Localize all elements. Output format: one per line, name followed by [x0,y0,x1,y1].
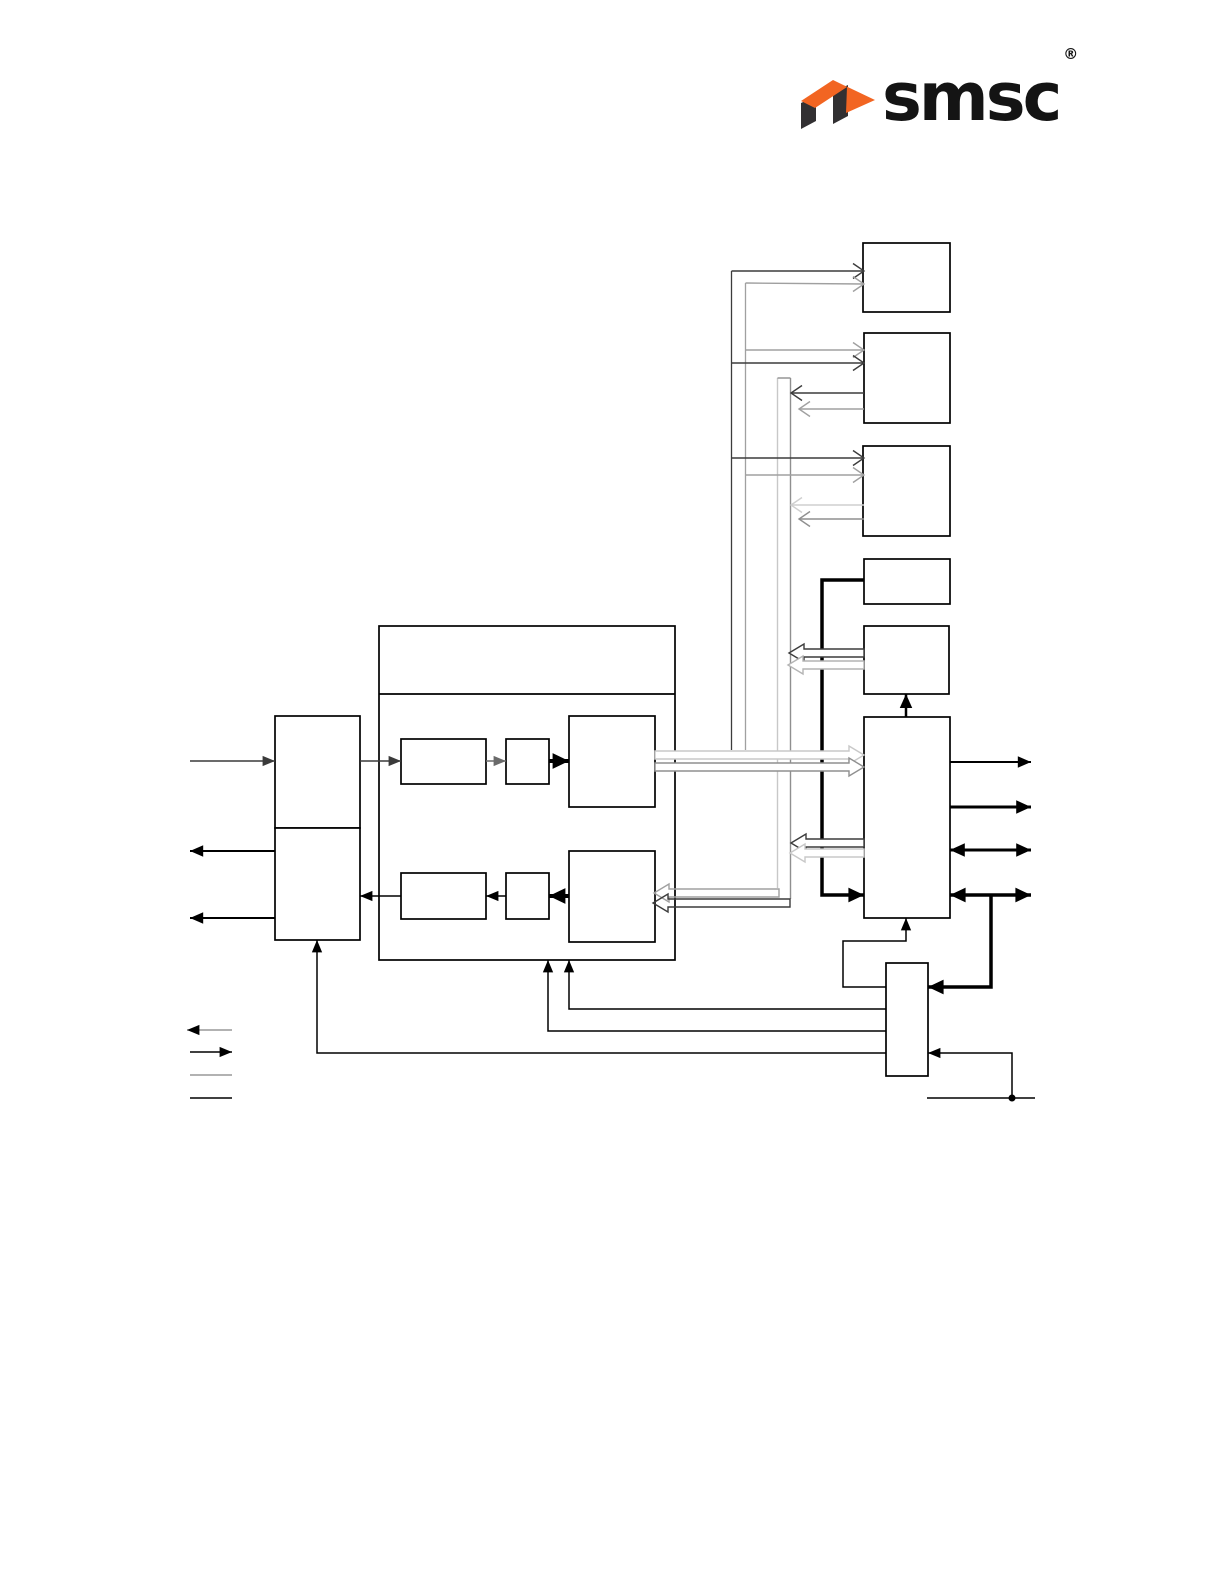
block-diagram [0,0,1224,1584]
bottom-to-center-feed-1-head [564,960,574,972]
right-bidir-arrow-2-head [1015,888,1031,903]
bottom-controller-box [886,963,928,1076]
bottom-to-tall-feed-head [901,918,911,930]
peripheral-box-2 [864,333,950,423]
left-upper-box [275,716,360,828]
sub-box-c [569,716,655,807]
bottom-to-center-feed-2 [548,960,886,1031]
thick-feed-line [822,580,864,895]
small-box-2 [864,626,949,694]
legend-line-1-head [187,1025,199,1035]
right-bidir-arrow-1-head [1016,843,1031,857]
stub-riser-arrow [928,1053,1012,1098]
peripheral-box-1 [863,243,950,312]
small-box-2-in-hollow-gray [788,656,864,674]
tall-controller-box [864,717,950,918]
thick-feed-line-head [848,888,864,903]
left-input-arrow-head [263,756,275,766]
left-lower-box [275,828,360,940]
right-output-arrow-2-head [1016,800,1031,814]
bidir-drop-to-bottom-box-head [928,980,944,995]
stub-riser-arrow-head [928,1048,940,1058]
bottom-to-left-lower-feed-head [312,940,322,952]
right-output-arrow-1-head [1018,756,1031,767]
left-output-arrow-1-head [190,845,203,856]
sub-box-f [569,851,655,942]
right-bidir-arrow-1-start-head [950,843,965,857]
legend-line-2-head [220,1047,232,1057]
sub-box-d [401,873,486,919]
vertical-bus-fill [778,378,790,888]
tall-to-small-box-2-arrow-head [900,694,913,708]
sub-box-e [506,873,549,919]
c-to-tall-hollow-gray [655,758,864,776]
box1-in-chevron-gray [746,283,865,284]
datasheet-page: smsc® [0,0,1224,1584]
sub-box-b [506,739,549,784]
c-to-tall-hollow-light [655,746,864,764]
right-bidir-arrow-2-start-head [950,888,966,903]
small-box-1 [864,559,950,604]
d-to-left-lower-arrow-head [360,891,372,901]
bottom-to-center-feed-1 [569,960,886,1009]
peripheral-box-3 [863,446,950,536]
bottom-to-center-feed-2-head [543,960,553,972]
stub-junction-dot [1009,1095,1016,1102]
sub-box-a [401,739,486,784]
left-output-arrow-2-head [190,912,203,923]
